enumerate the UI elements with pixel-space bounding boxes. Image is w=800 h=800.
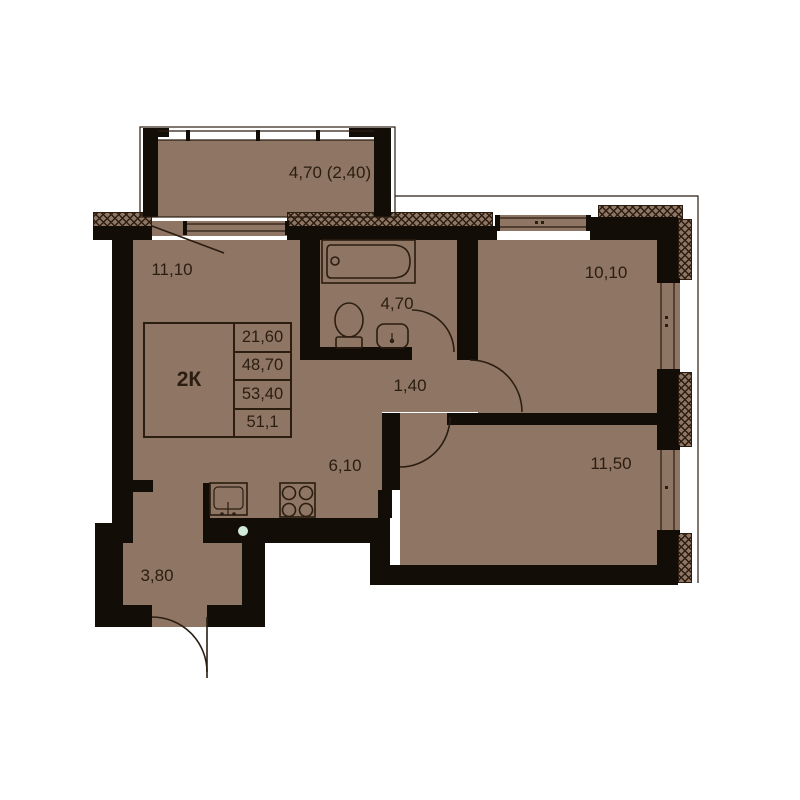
apartment-type-label: 2К: [145, 324, 235, 436]
apartment-area-rows: 21,60 48,70 53,40 51,1: [235, 324, 290, 436]
area-value: 21,60: [235, 324, 290, 353]
area-value: 53,40: [235, 381, 290, 410]
area-value: 48,70: [235, 353, 290, 382]
apartment-info-table: 2К 21,60 48,70 53,40 51,1: [143, 322, 292, 438]
building-contour-line: [395, 196, 698, 583]
balcony-door-window: [152, 221, 289, 253]
room-label-bedroom-top: 10,10: [585, 263, 628, 283]
floor-plan: 4,70 (2,40) 11,10 4,70 10,10 1,40 11,50 …: [0, 0, 800, 800]
room-label-balcony: 4,70 (2,40): [289, 163, 371, 183]
entry-door: [152, 617, 207, 678]
room-label-entry: 3,80: [140, 566, 173, 586]
balcony-door-leaf: [152, 226, 224, 253]
window-right-top: [657, 278, 680, 374]
bathroom-sink-icon: [377, 324, 408, 348]
highlight-dot: [238, 526, 248, 536]
room-label-bedroom-bottom: 11,50: [590, 454, 631, 474]
room-label-hallway: 1,40: [393, 376, 426, 396]
toilet-icon: [335, 303, 363, 348]
plan-linework: [0, 0, 800, 800]
room-label-living: 11,10: [151, 260, 192, 280]
room-label-bathroom: 4,70: [380, 294, 413, 314]
room-label-kitchen: 6,10: [328, 456, 361, 476]
window-right-bottom: [657, 445, 680, 535]
bedroom-bottom-door-arc: [400, 417, 450, 467]
balcony-glazing: [158, 130, 374, 141]
bathtub-icon: [322, 240, 415, 283]
kitchen-sink-icon: [210, 483, 247, 516]
bathroom-door-arc: [412, 310, 454, 352]
window-top: [495, 215, 591, 231]
stove-icon: [280, 483, 315, 517]
bedroom-top-door-arc: [470, 360, 522, 412]
area-value: 51,1: [235, 410, 290, 437]
